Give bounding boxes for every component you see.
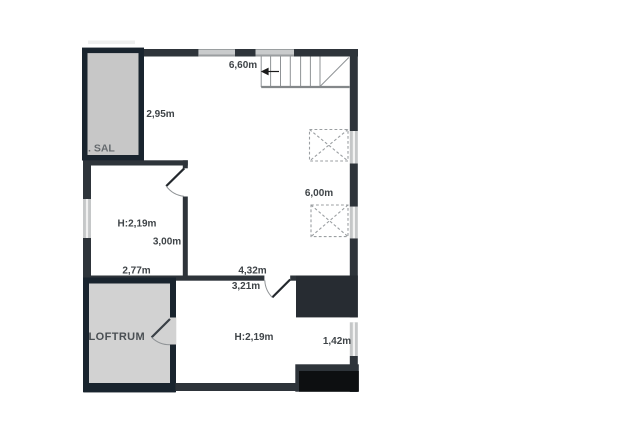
svg-text:4,32m: 4,32m xyxy=(238,266,266,277)
svg-text:6,60m: 6,60m xyxy=(229,60,257,71)
svg-text:6,00m: 6,00m xyxy=(305,188,333,199)
svg-text:2,77m: 2,77m xyxy=(122,266,150,277)
svg-text:H:2,19m: H:2,19m xyxy=(235,332,274,343)
svg-text:. SAL: . SAL xyxy=(88,142,115,154)
svg-text:2,95m: 2,95m xyxy=(146,109,174,120)
svg-text:H:2,19m: H:2,19m xyxy=(118,219,157,230)
svg-text:3,21m: 3,21m xyxy=(232,281,260,292)
svg-text:3,00m: 3,00m xyxy=(153,237,181,248)
svg-text:1,42m: 1,42m xyxy=(323,336,351,347)
svg-text:LOFTRUM: LOFTRUM xyxy=(89,331,146,343)
